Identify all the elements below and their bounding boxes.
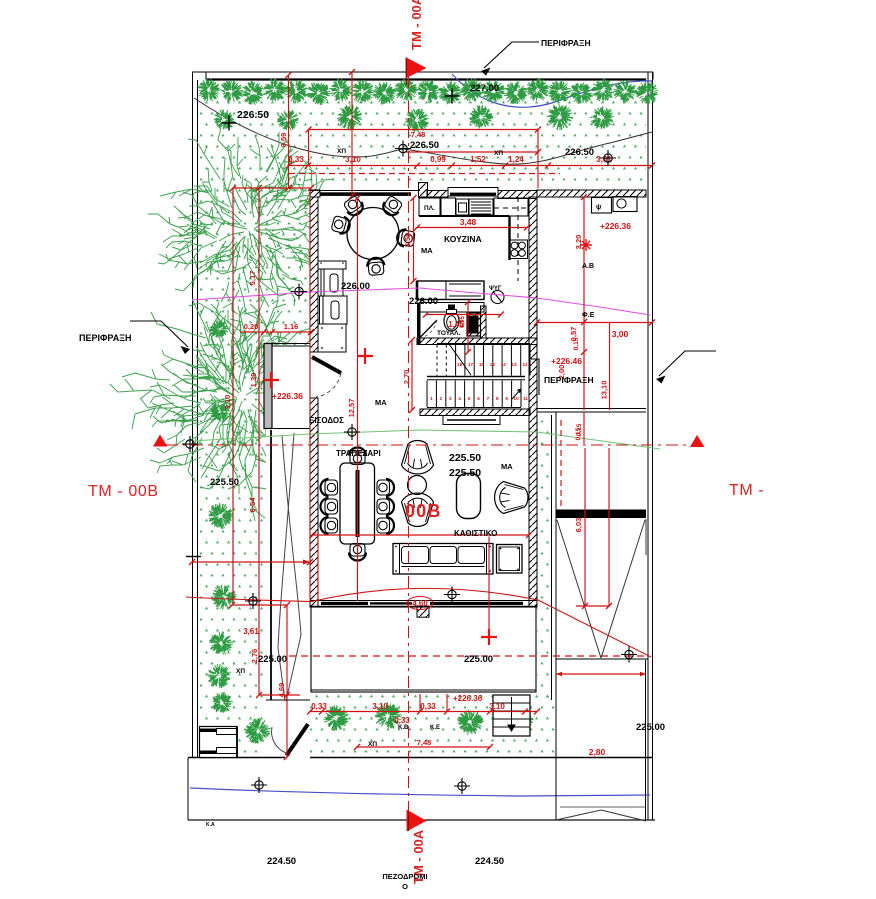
svg-text:2,59: 2,59 [403, 233, 412, 248]
svg-text:ΠΕΡΙΦΡΑΞΗ: ΠΕΡΙΦΡΑΞΗ [541, 38, 591, 48]
svg-text:7,48: 7,48 [417, 738, 432, 747]
svg-text:4,60: 4,60 [412, 599, 428, 608]
svg-text:ΨΥΓ: ΨΥΓ [489, 286, 502, 292]
svg-text:3,48: 3,48 [460, 217, 477, 227]
svg-text:ΤΡΑΠΕΖΑΡΙ: ΤΡΑΠΕΖΑΡΙ [336, 449, 381, 458]
svg-text:12: 12 [522, 362, 528, 367]
svg-text:0,15: 0,15 [573, 337, 580, 350]
svg-text:226.00: 226.00 [341, 281, 370, 292]
svg-text:12,57: 12,57 [347, 399, 356, 418]
svg-text:226.50: 226.50 [237, 109, 269, 121]
svg-text:13: 13 [512, 362, 518, 367]
svg-text:225.50: 225.50 [449, 452, 481, 464]
svg-text:ΚΟΥΖΙΝΑ: ΚΟΥΖΙΝΑ [444, 234, 482, 244]
svg-text:226.00: 226.00 [409, 296, 438, 307]
svg-text:ΚΑΘΙΣΤΙΚΟ: ΚΑΘΙΣΤΙΚΟ [454, 529, 497, 538]
svg-text:7: 7 [487, 396, 490, 401]
svg-text:1,52: 1,52 [470, 155, 486, 164]
svg-text:Κ.Ε: Κ.Ε [430, 725, 440, 731]
svg-text:Α.Β: Α.Β [582, 263, 594, 270]
svg-text:224.50: 224.50 [475, 856, 504, 867]
svg-text:Φ.Ε: Φ.Ε [582, 312, 595, 319]
svg-text:227.00: 227.00 [470, 83, 499, 94]
svg-text:0,99: 0,99 [430, 155, 446, 164]
svg-text:TM - 00B: TM - 00B [88, 483, 159, 500]
svg-text:226.50: 226.50 [410, 140, 439, 151]
svg-text:Κ.Α: Κ.Α [206, 822, 215, 828]
svg-text:13,10: 13,10 [600, 381, 609, 400]
svg-text:9: 9 [505, 396, 508, 401]
svg-text:0,33: 0,33 [288, 155, 304, 164]
svg-text:ΤΟΥΑΛ.: ΤΟΥΑΛ. [437, 330, 461, 337]
svg-text:225.00: 225.00 [636, 722, 665, 733]
svg-text:Κ.Β: Κ.Β [398, 725, 409, 731]
svg-text:3,61: 3,61 [243, 627, 259, 636]
svg-text:00B: 00B [405, 501, 442, 521]
svg-text:ΠΕΖΟΔΡΟΜΙ: ΠΕΖΟΔΡΟΜΙ [382, 872, 427, 881]
svg-text:8: 8 [496, 396, 499, 401]
svg-text:+226.46: +226.46 [551, 356, 582, 366]
svg-text:225.50: 225.50 [210, 477, 239, 488]
svg-text:2,80: 2,80 [589, 747, 606, 757]
svg-text:17: 17 [468, 362, 474, 367]
svg-text:3: 3 [449, 396, 452, 401]
svg-text:0,33: 0,33 [420, 702, 436, 711]
svg-text:224.50: 224.50 [267, 856, 296, 867]
svg-text:+226.36: +226.36 [272, 391, 303, 401]
svg-text:ΠΕΡΙΦΡΑΞΗ: ΠΕΡΙΦΡΑΞΗ [544, 375, 594, 385]
svg-text:6: 6 [477, 396, 480, 401]
svg-text:3,10: 3,10 [372, 702, 388, 711]
svg-text:ΜΑ: ΜΑ [375, 398, 387, 407]
svg-text:6,03: 6,03 [574, 518, 583, 533]
svg-text:6,54: 6,54 [248, 497, 257, 512]
svg-text:3,10: 3,10 [345, 155, 361, 164]
svg-text:0,33: 0,33 [394, 716, 410, 725]
svg-text:ΜΑ: ΜΑ [421, 246, 433, 255]
svg-text:ΧΠ: ΧΠ [494, 150, 503, 157]
svg-text:+226.36: +226.36 [453, 694, 483, 703]
svg-text:1: 1 [430, 396, 433, 401]
svg-text:4: 4 [458, 396, 461, 401]
svg-text:2,70: 2,70 [402, 370, 411, 385]
svg-text:3,00: 3,00 [612, 329, 629, 339]
svg-text:225.00: 225.00 [258, 654, 287, 665]
svg-text:ΕΙΣΟΔΟΣ: ΕΙΣΟΔΟΣ [309, 416, 344, 425]
svg-text:1,24: 1,24 [508, 155, 524, 164]
svg-text:ψ: ψ [596, 204, 601, 211]
svg-text:225.50: 225.50 [449, 467, 481, 479]
svg-text:225.00: 225.00 [464, 654, 493, 665]
svg-text:0,33: 0,33 [311, 702, 327, 711]
svg-text:0,20: 0,20 [244, 322, 259, 331]
svg-text:ΧΠ: ΧΠ [236, 668, 245, 675]
svg-text:226.50: 226.50 [565, 147, 594, 158]
svg-text:+226.36: +226.36 [600, 221, 631, 231]
svg-text:3,10: 3,10 [489, 702, 505, 711]
svg-text:14: 14 [501, 362, 507, 367]
svg-text:3,59: 3,59 [279, 133, 288, 148]
svg-text:TM - 00A: TM - 00A [409, 0, 424, 50]
svg-text:1,39: 1,39 [249, 373, 258, 388]
svg-text:TM -: TM - [729, 482, 764, 499]
svg-text:ΜΑ: ΜΑ [501, 462, 513, 471]
svg-text:ΠΕΡΙΦΡΑΞΗ: ΠΕΡΙΦΡΑΞΗ [79, 333, 132, 343]
svg-text:0,95: 0,95 [460, 316, 466, 328]
svg-text:15: 15 [490, 362, 496, 367]
svg-text:2: 2 [440, 396, 443, 401]
svg-text:16: 16 [479, 362, 485, 367]
svg-text:7,48: 7,48 [411, 130, 426, 139]
svg-text:0,15: 0,15 [576, 423, 583, 436]
svg-text:ΠΛ.: ΠΛ. [424, 205, 435, 212]
svg-text:ΧΠ: ΧΠ [337, 148, 346, 155]
svg-text:ΧΠ: ΧΠ [368, 741, 377, 748]
svg-text:3,10: 3,10 [223, 395, 232, 410]
svg-text:5: 5 [468, 396, 471, 401]
svg-text:3,20: 3,20 [574, 235, 583, 250]
svg-text:18: 18 [457, 362, 463, 367]
svg-text:1,16: 1,16 [284, 322, 299, 331]
svg-text:Ο: Ο [402, 882, 408, 891]
svg-text:11: 11 [523, 396, 528, 401]
svg-text:5,17: 5,17 [248, 271, 257, 286]
